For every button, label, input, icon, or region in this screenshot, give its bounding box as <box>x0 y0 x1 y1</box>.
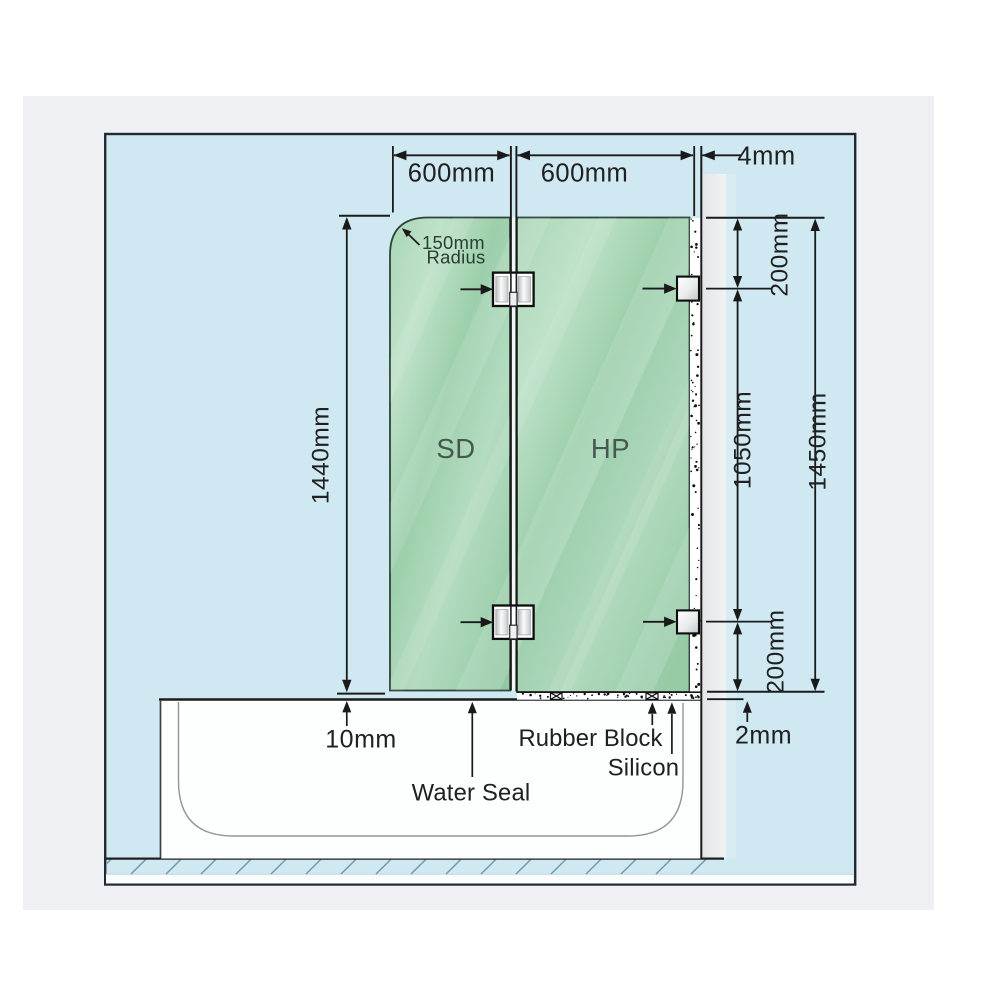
svg-text:600mm: 600mm <box>541 160 629 188</box>
svg-text:1050mm: 1050mm <box>730 391 757 489</box>
svg-text:600mm: 600mm <box>408 160 496 188</box>
svg-text:2mm: 2mm <box>735 722 792 750</box>
svg-text:10mm: 10mm <box>325 726 396 754</box>
svg-text:Silicon: Silicon <box>608 755 680 782</box>
svg-text:HP: HP <box>591 433 630 464</box>
svg-text:4mm: 4mm <box>737 142 795 170</box>
svg-text:200mm: 200mm <box>767 212 794 296</box>
svg-text:SD: SD <box>436 433 475 464</box>
svg-text:Radius: Radius <box>427 247 486 268</box>
svg-text:Water Seal: Water Seal <box>412 780 531 807</box>
svg-text:1440mm: 1440mm <box>308 406 335 504</box>
svg-text:1450mm: 1450mm <box>805 392 832 490</box>
svg-text:200mm: 200mm <box>763 609 790 693</box>
svg-text:Rubber Block: Rubber Block <box>518 725 662 752</box>
